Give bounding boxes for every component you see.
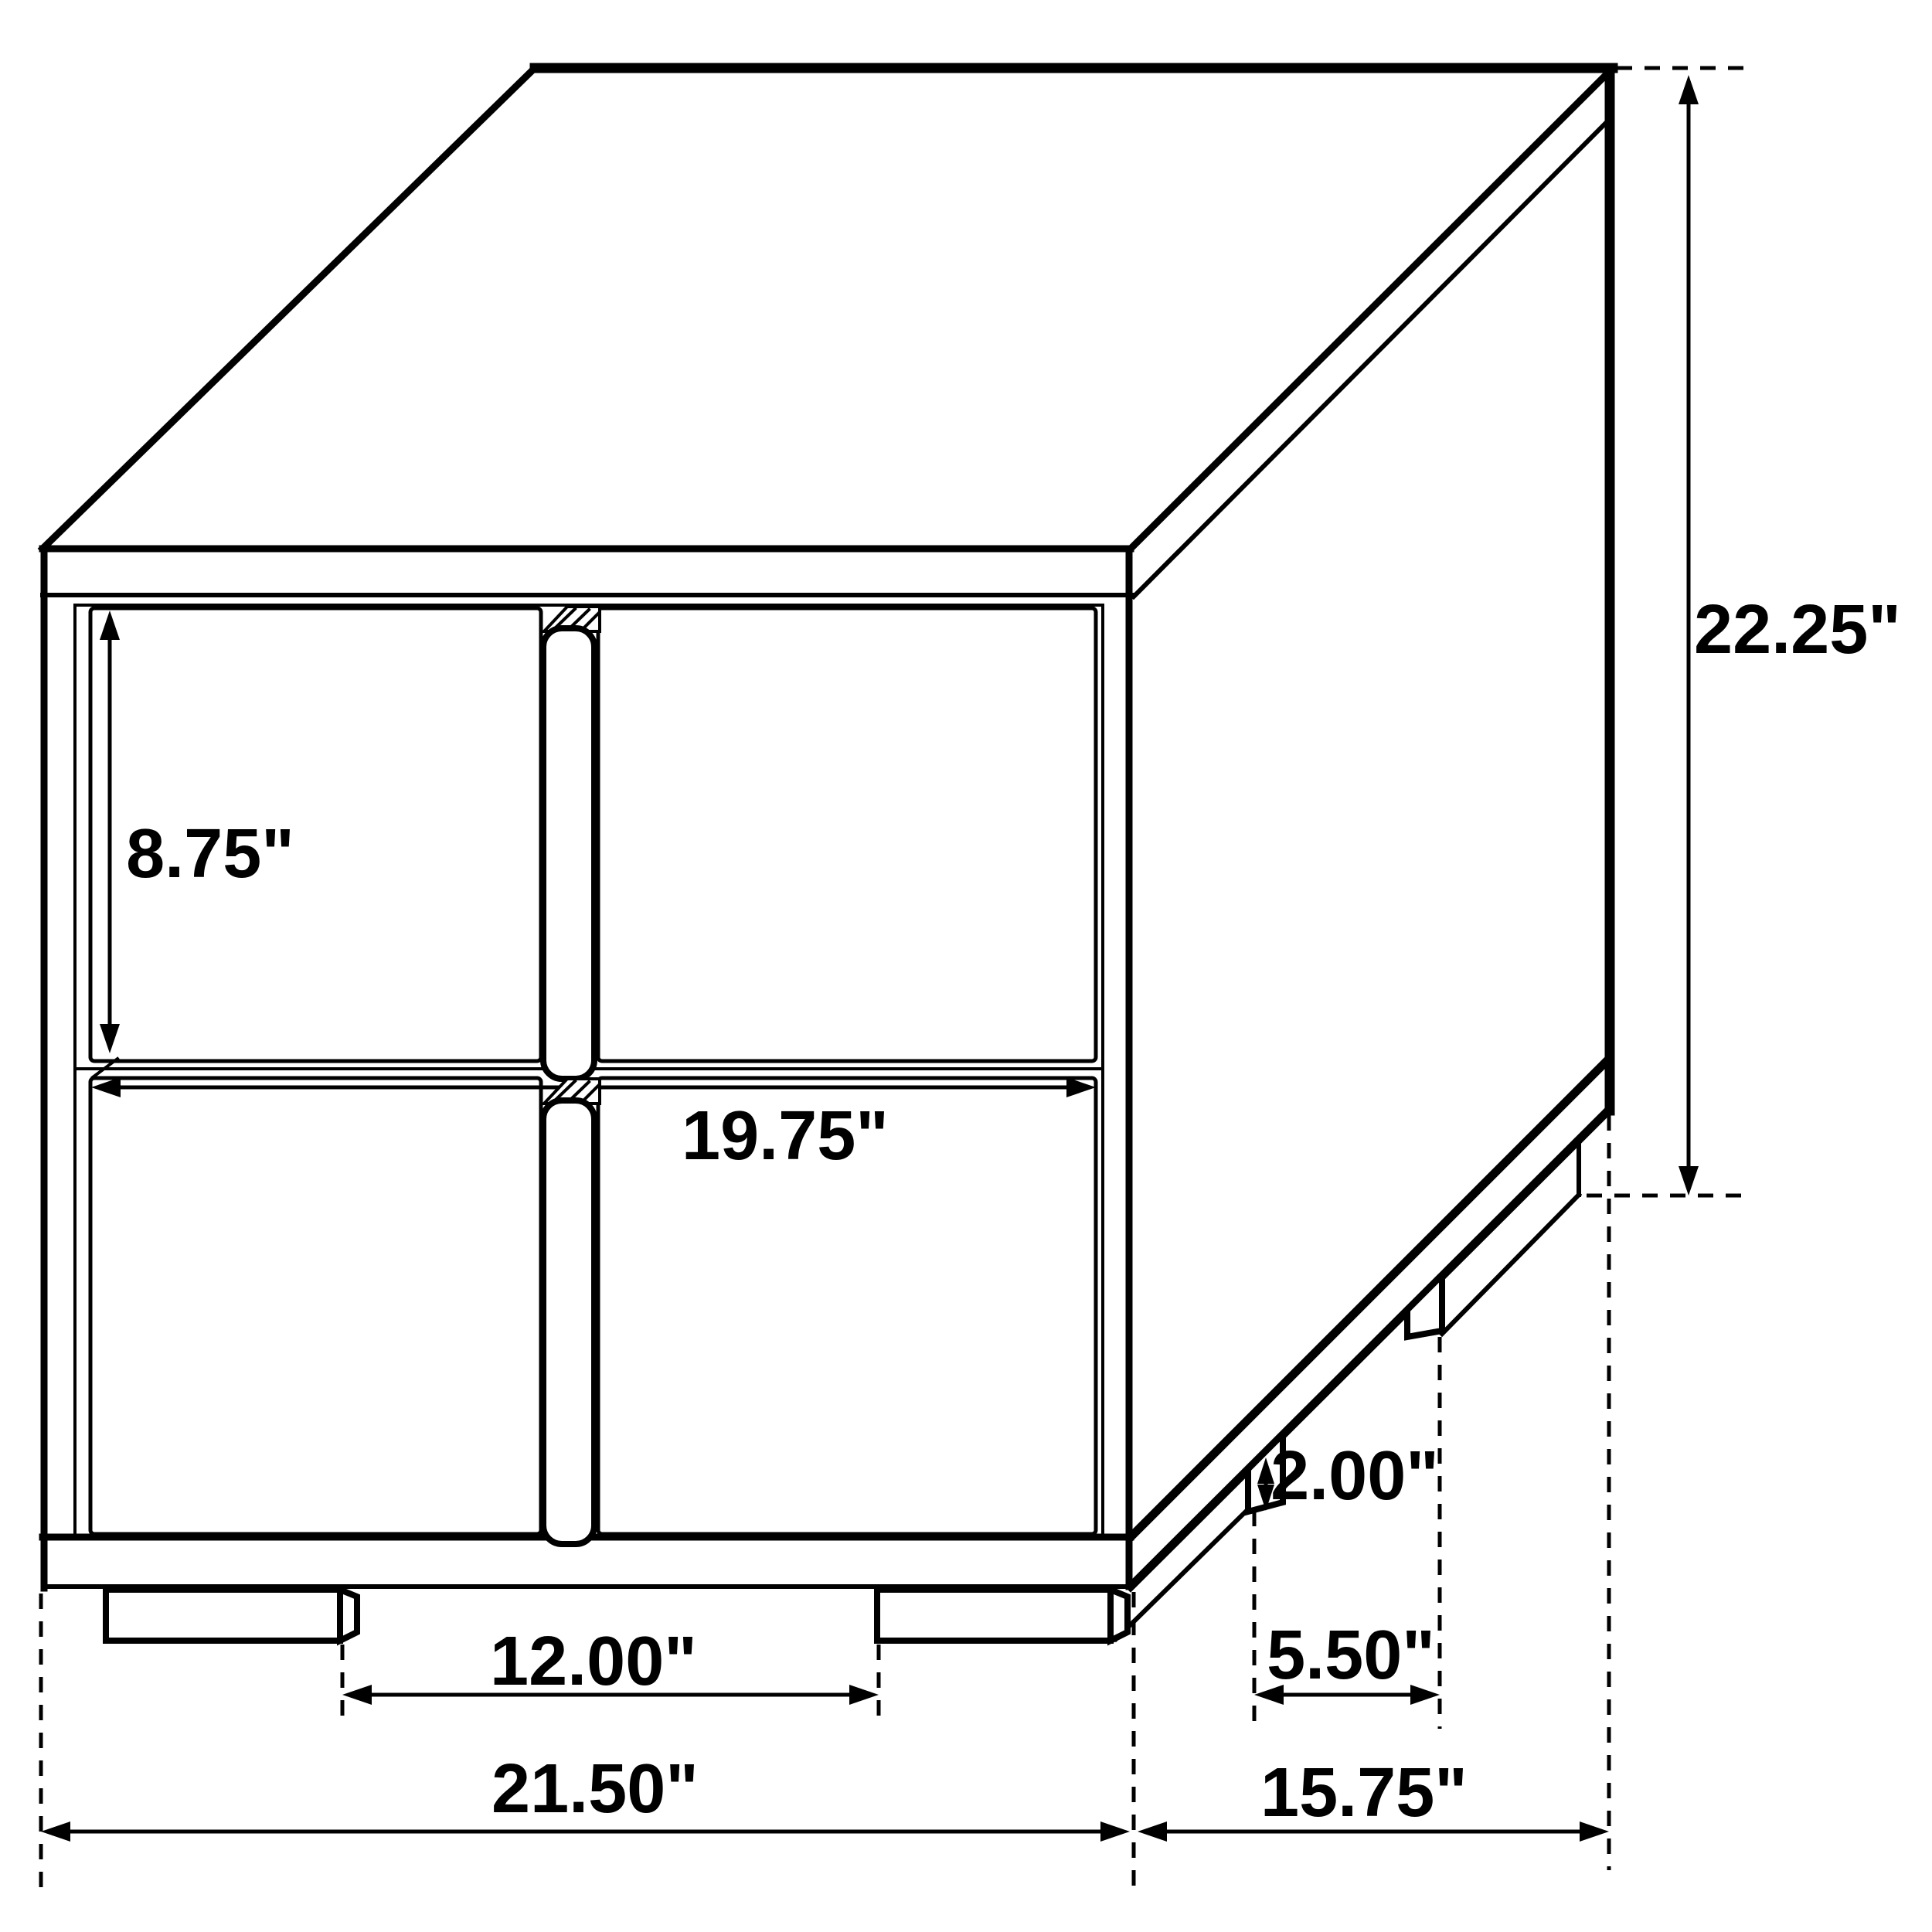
drawer-handle-bottom (543, 1100, 594, 1544)
drawer-handle-top (543, 628, 594, 1079)
arrowhead-right-icon (1580, 1821, 1609, 1842)
dimension-overall-width: 21.50" (41, 1750, 1130, 1842)
dimension-overall-depth: 15.75" (1138, 1754, 1609, 1842)
arrowhead-left-icon (1138, 1821, 1167, 1842)
arrowhead-up-icon (1679, 75, 1699, 104)
cabinet-side-face (1116, 71, 1610, 1639)
side-bottom-board-edge (1131, 1111, 1607, 1587)
dimension-label-side-leg-spacing: 5.50" (1267, 1617, 1435, 1694)
dimension-label-leg-height: 2.00" (1270, 1437, 1439, 1515)
dimension-front-leg-spacing: 12.00" (342, 1623, 879, 1705)
front-right-foot (877, 1590, 1111, 1641)
top-slab-side-bottom-edge (1134, 121, 1607, 597)
dimension-overall-height: 22.25" (1679, 75, 1901, 1196)
nightstand-line-drawing: 19.75" 8.75" 22. (0, 0, 1932, 1932)
front-left-foot-bevel (340, 1590, 357, 1641)
dimension-leg-height: 2.00" (1257, 1437, 1439, 1515)
drawer-panel-bottom-left (90, 1078, 541, 1534)
drawer-handles (543, 607, 600, 1544)
dimension-side-leg-spacing: 5.50" (1254, 1617, 1440, 1705)
dimension-label-front-leg-spacing: 12.00" (490, 1623, 697, 1700)
side-rear-foot (1407, 1275, 1442, 1337)
dimension-label-overall-width: 21.50" (492, 1750, 699, 1828)
arrowhead-right-icon (849, 1685, 879, 1705)
arrowhead-down-icon (1679, 1166, 1699, 1196)
top-left-edge (43, 68, 535, 549)
front-left-foot (106, 1590, 340, 1641)
arrowhead-left-icon (41, 1821, 70, 1842)
arrowhead-left-icon (342, 1685, 372, 1705)
side-plinth-rear-bottom-edge (1442, 1195, 1579, 1334)
dimension-label-overall-depth: 15.75" (1260, 1754, 1468, 1832)
top-right-edge (1131, 68, 1613, 549)
front-right-foot-bevel (1111, 1590, 1128, 1641)
dimension-label-drawer-front-height: 8.75" (126, 815, 294, 893)
arrowhead-right-icon (1100, 1821, 1130, 1842)
dimension-diagram: 19.75" 8.75" 22. (0, 0, 1932, 1932)
dimension-label-overall-height: 22.25" (1694, 591, 1901, 668)
drawer-panel-top-right (598, 608, 1096, 1061)
dimension-label-drawer-front-width: 19.75" (682, 1097, 889, 1175)
cabinet-top-panel (43, 68, 1613, 597)
